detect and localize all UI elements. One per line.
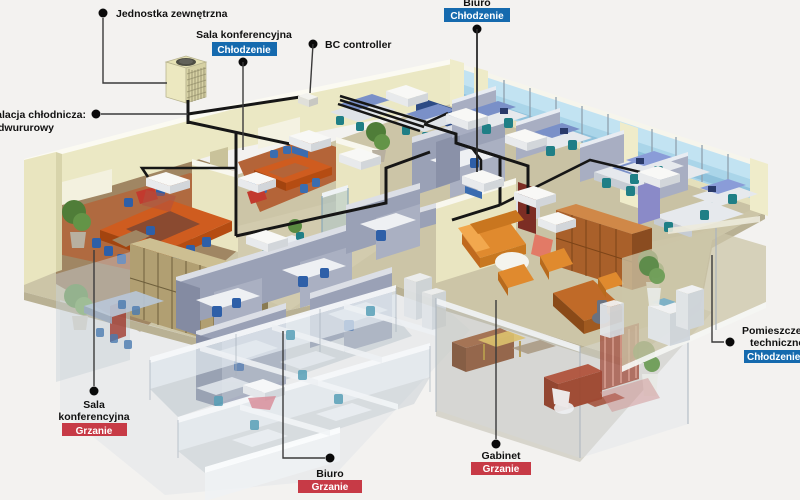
svg-text:BC controller: BC controller — [325, 39, 392, 51]
svg-text:Sala: Sala — [83, 399, 105, 411]
svg-text:Chłodzenie: Chłodzenie — [217, 45, 271, 56]
svg-text:techniczne: techniczne — [750, 337, 800, 349]
svg-text:Pomieszczenie: Pomieszczenie — [742, 325, 800, 337]
svg-text:Biuro: Biuro — [463, 0, 490, 9]
svg-text:Jednostka zewnętrzna: Jednostka zewnętrzna — [116, 8, 228, 20]
svg-text:Instalacja chłodnicza:: Instalacja chłodnicza: — [0, 109, 86, 121]
svg-text:Sala konferencyjna: Sala konferencyjna — [196, 29, 292, 41]
svg-text:Gabinet: Gabinet — [481, 450, 521, 462]
svg-text:Grzanie: Grzanie — [312, 482, 349, 493]
svg-text:Chłodzenie: Chłodzenie — [450, 11, 504, 22]
svg-text:konferencyjna: konferencyjna — [58, 411, 129, 423]
svg-text:Grzanie: Grzanie — [483, 464, 520, 475]
svg-text:Biuro: Biuro — [316, 468, 343, 480]
svg-text:Grzanie: Grzanie — [76, 426, 113, 437]
svg-text:Chłodzenie: Chłodzenie — [747, 352, 800, 363]
svg-text:dwururowy: dwururowy — [0, 122, 54, 134]
